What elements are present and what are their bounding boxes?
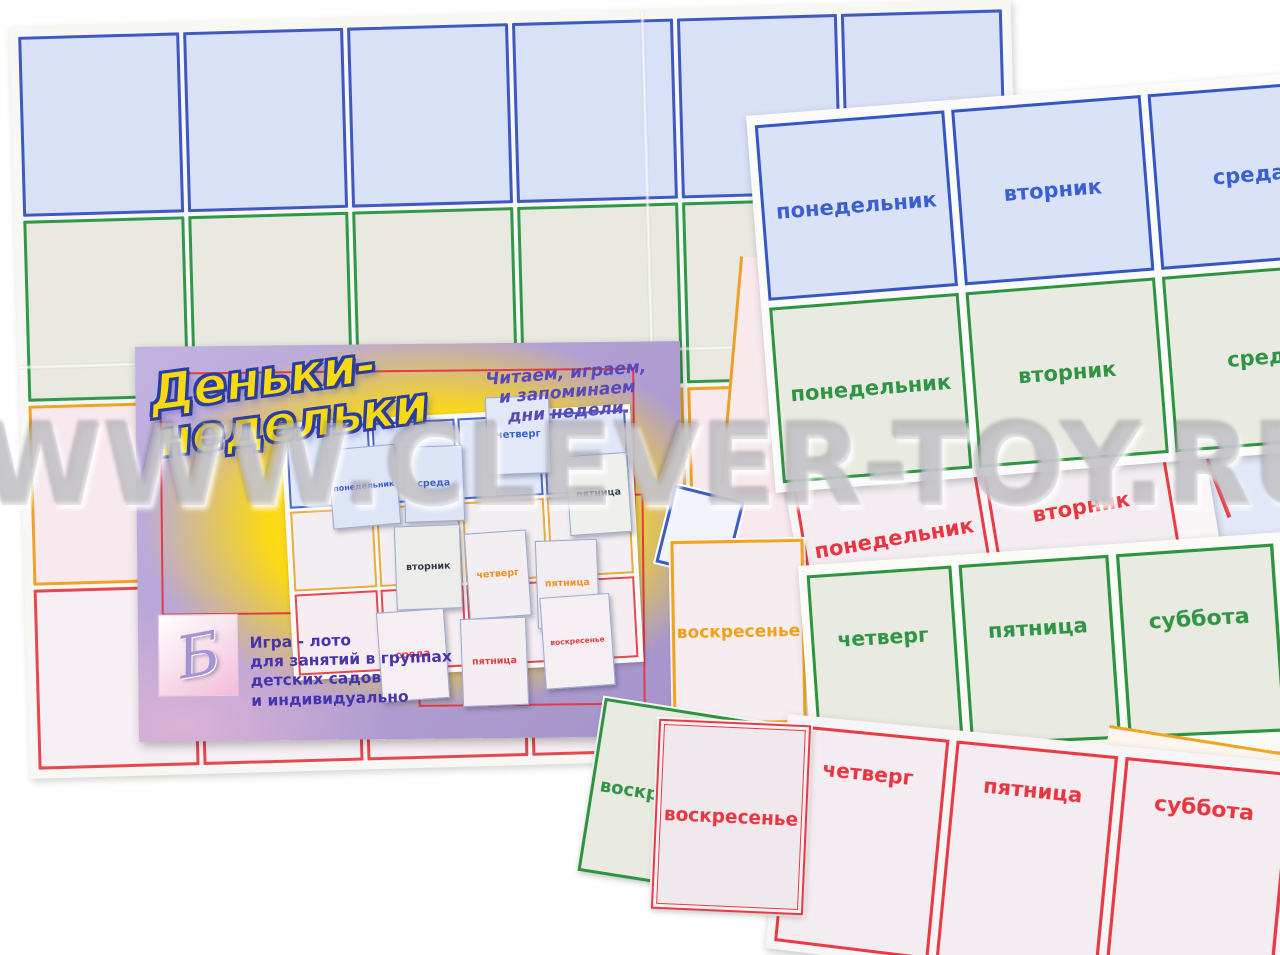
mini-card-wednesday: среда (402, 445, 465, 523)
card-sheet-grid: четверг пятница суббота (807, 543, 1280, 752)
mini-card-thursday-orange: четверг (464, 529, 532, 619)
mini-card-friday: пятница (565, 452, 633, 536)
card-friday-red: пятница (936, 741, 1118, 955)
card-tuesday-blue: вторник (951, 95, 1154, 285)
box-description: Игра - лото для занятий в группах детски… (249, 627, 521, 711)
publisher-logo: Б (158, 614, 239, 697)
publisher-logo-glyph: Б (171, 618, 225, 693)
mini-card-monday: понедельник (326, 444, 401, 530)
card-friday-green: пятница (958, 555, 1121, 746)
card-sheet-grid: четверг пятница суббота (774, 725, 1280, 955)
card-saturday-red: суббота (1104, 757, 1280, 955)
card-sunday-orange: воскресенье (670, 539, 806, 725)
mini-card-sunday-red: воскресенье (539, 593, 615, 690)
board-cell (18, 32, 184, 217)
game-box-cover: четверг понедельник среда пятница вторни… (135, 341, 684, 742)
card-wednesday-blue: среда (1148, 80, 1280, 270)
card-monday-green: понедельник (769, 293, 972, 483)
board-cell (347, 23, 513, 208)
board-cell (183, 28, 349, 213)
card-tuesday-green: вторник (966, 277, 1169, 467)
mini-card-tuesday: вторник (394, 524, 463, 610)
card-sheet-grid: понедельник вторник среда понедельник вт… (755, 80, 1280, 484)
product-photo-days-of-week-lotto: четверг понедельник среда пятница вторни… (0, 0, 1280, 955)
card-saturday-green: суббота (1116, 543, 1280, 738)
card-wednesday-green: среда (1162, 262, 1280, 452)
card-monday-blue: понедельник (755, 110, 958, 300)
card-sheet-blue-green: понедельник вторник среда понедельник вт… (746, 69, 1280, 493)
board-cell (512, 19, 678, 204)
card-sunday-red: воскресенье (651, 719, 811, 915)
